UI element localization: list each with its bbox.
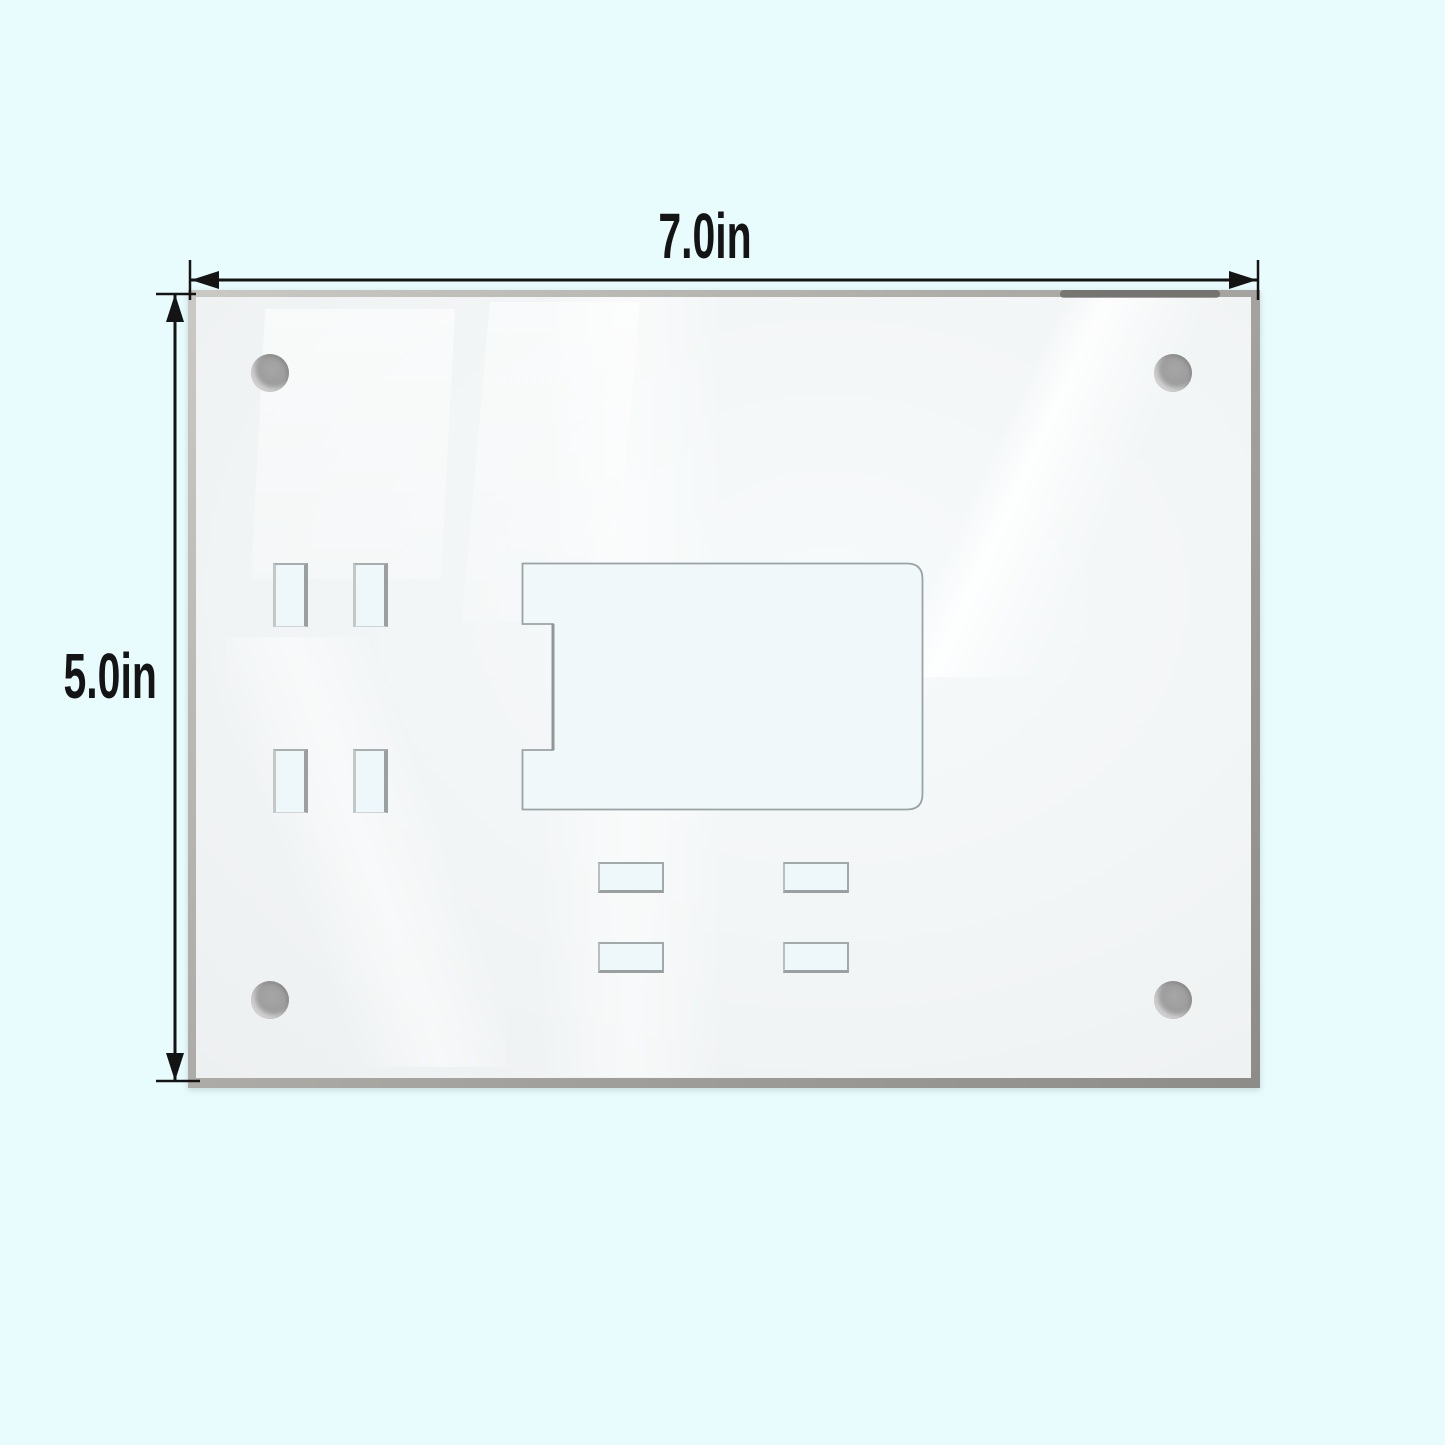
width-dimension-label: 7.0in	[577, 204, 833, 268]
height-dimension-label: 5.0in	[64, 644, 157, 708]
arrow-down-icon	[166, 1053, 184, 1081]
arrow-right-icon	[1229, 271, 1257, 289]
arrow-up-icon	[166, 294, 184, 322]
diagram-canvas: 7.0in 5.0in	[0, 0, 1445, 1445]
arrow-left-icon	[191, 271, 219, 289]
